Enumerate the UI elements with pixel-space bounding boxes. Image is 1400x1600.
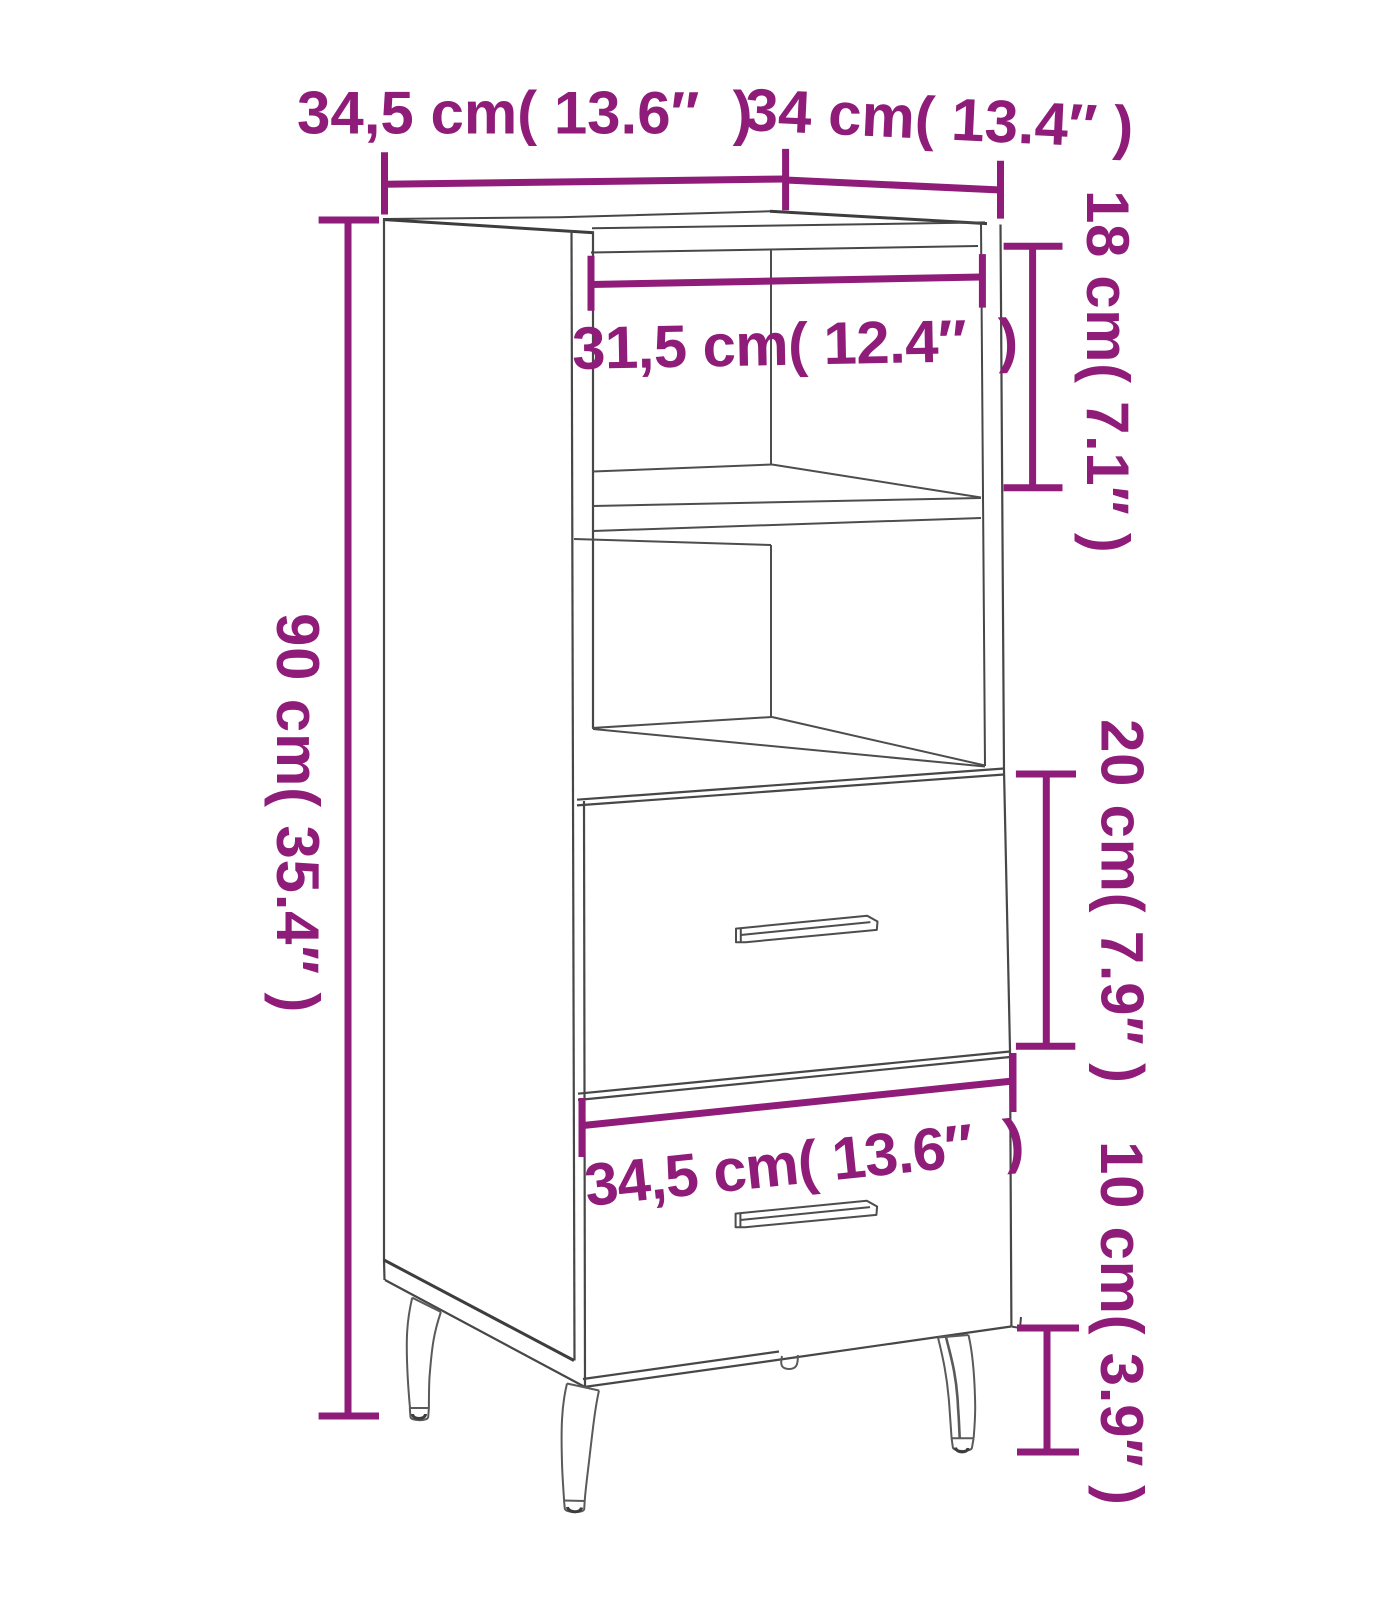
- svg-text:31,5 cm( 12.4″ ): 31,5 cm( 12.4″ ): [571, 306, 1018, 382]
- svg-text:90 cm( 35.4″ ): 90 cm( 35.4″ ): [264, 613, 331, 1013]
- svg-text:10 cm( 3.9″ ): 10 cm( 3.9″ ): [1088, 1141, 1155, 1506]
- svg-text:20 cm( 7.9″ ): 20 cm( 7.9″ ): [1089, 719, 1156, 1084]
- svg-text:18 cm( 7.1″ ): 18 cm( 7.1″ ): [1074, 190, 1141, 553]
- svg-text:34,5 cm( 13.6″ ): 34,5 cm( 13.6″ ): [297, 80, 753, 147]
